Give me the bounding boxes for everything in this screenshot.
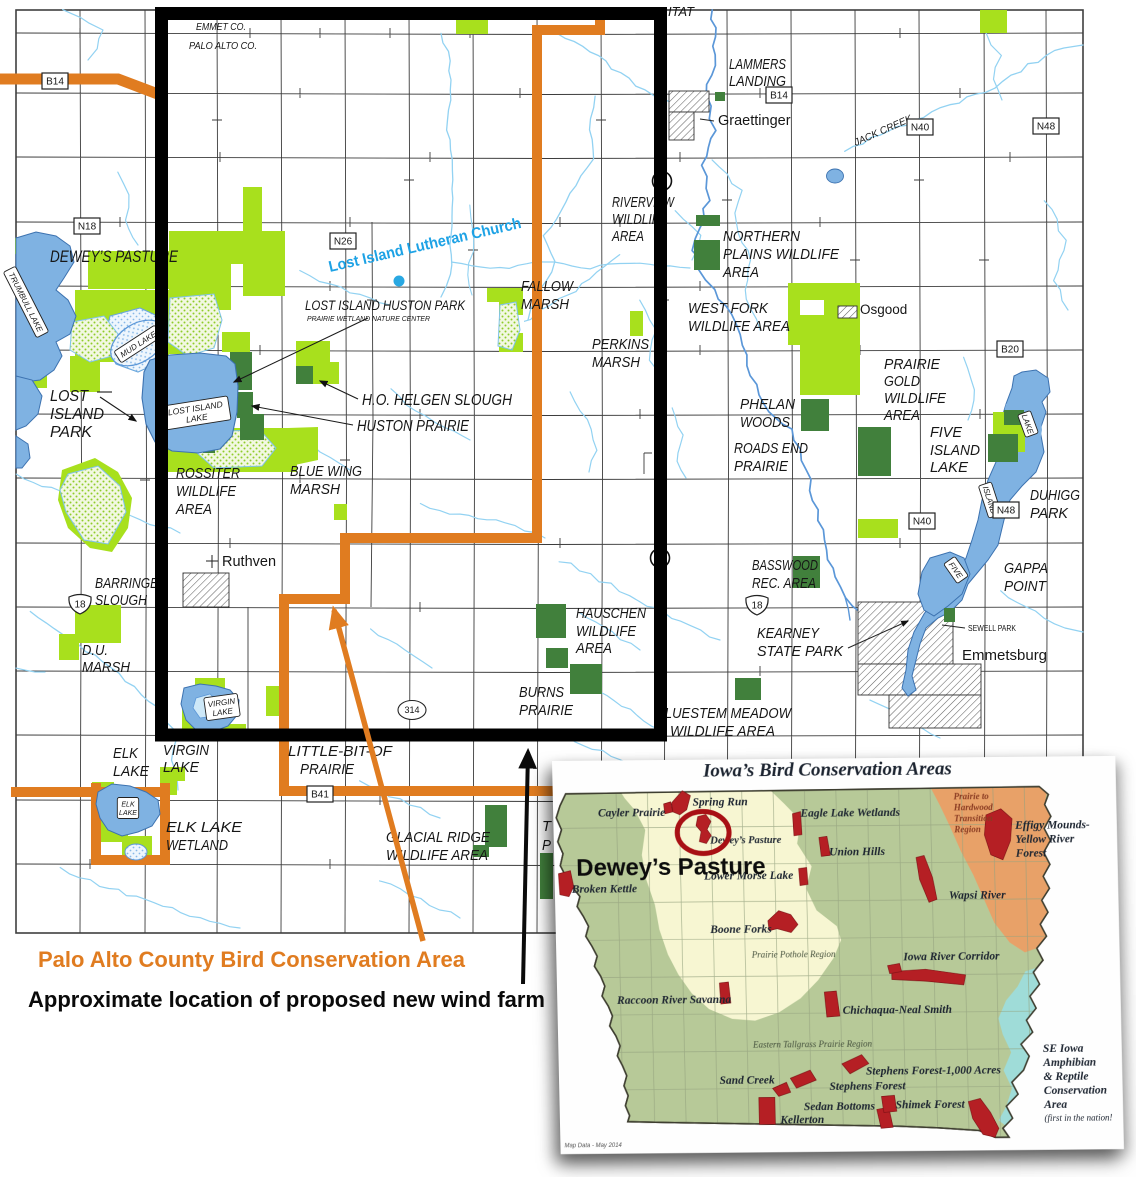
svg-text:N48: N48 <box>997 506 1016 517</box>
svg-text:Spring Run: Spring Run <box>692 796 747 809</box>
svg-text:ITAT: ITAT <box>668 4 695 19</box>
svg-text:Kellerton: Kellerton <box>779 1114 824 1126</box>
svg-text:N48: N48 <box>1037 122 1056 133</box>
svg-text:VIRGIN: VIRGIN <box>163 742 209 759</box>
svg-text:Broken Kettle: Broken Kettle <box>571 883 638 896</box>
svg-text:BASSWOOD: BASSWOOD <box>752 557 818 574</box>
svg-text:HAUSCHEN: HAUSCHEN <box>576 605 646 622</box>
svg-text:Shimek Forest: Shimek Forest <box>896 1099 966 1112</box>
svg-text:MARSH: MARSH <box>592 354 640 371</box>
svg-text:NORTHERN: NORTHERN <box>723 228 800 245</box>
svg-text:314: 314 <box>404 705 419 715</box>
svg-text:WILDLIFE AREA: WILDLIFE AREA <box>688 318 790 335</box>
svg-text:Transition: Transition <box>954 813 993 823</box>
svg-text:PALO ALTO CO.: PALO ALTO CO. <box>189 40 257 52</box>
svg-text:PERKINS: PERKINS <box>592 336 649 353</box>
svg-text:BLUE WING: BLUE WING <box>290 463 362 480</box>
svg-text:ISLAND: ISLAND <box>930 442 980 459</box>
svg-text:B41: B41 <box>311 790 329 801</box>
svg-text:WETLAND: WETLAND <box>166 837 228 854</box>
svg-text:WILDLIFE: WILDLIFE <box>176 483 237 500</box>
svg-text:Raccoon River Savanna: Raccoon River Savanna <box>616 994 732 1007</box>
svg-text:D.U.: D.U. <box>82 642 108 659</box>
svg-text:LOST: LOST <box>50 388 89 405</box>
svg-text:SE Iowa: SE Iowa <box>1043 1043 1084 1055</box>
svg-text:WOODS: WOODS <box>740 414 790 431</box>
svg-text:18: 18 <box>74 599 86 610</box>
svg-text:MARSH: MARSH <box>82 659 130 676</box>
svg-text:ROADS END: ROADS END <box>734 440 808 457</box>
svg-text:Chichaqua-Neal Smith: Chichaqua-Neal Smith <box>843 1004 952 1017</box>
svg-text:SLOUGH: SLOUGH <box>95 592 147 609</box>
svg-text:Graettinger: Graettinger <box>718 113 791 129</box>
svg-text:FIVE: FIVE <box>930 424 963 441</box>
svg-text:Eagle Lake Wetlands: Eagle Lake Wetlands <box>799 807 900 820</box>
svg-text:& Reptile: & Reptile <box>1043 1071 1088 1083</box>
svg-text:LAKE: LAKE <box>119 810 137 817</box>
svg-text:MARSH: MARSH <box>290 481 340 498</box>
svg-text:Hardwood: Hardwood <box>953 802 994 812</box>
svg-text:HUSTON PRAIRIE: HUSTON PRAIRIE <box>357 418 470 435</box>
svg-text:Iowa’s Bird Conservation Areas: Iowa’s Bird Conservation Areas <box>702 758 952 781</box>
svg-text:Conservation: Conservation <box>1044 1084 1107 1097</box>
svg-text:Iowa River Corridor: Iowa River Corridor <box>902 951 1000 964</box>
svg-text:Effigy Mounds-: Effigy Mounds- <box>1014 819 1090 832</box>
svg-text:Sand Creek: Sand Creek <box>719 1074 775 1087</box>
svg-text:ELK: ELK <box>113 745 139 762</box>
svg-text:Wapsi River: Wapsi River <box>949 890 1007 903</box>
svg-text:B14: B14 <box>46 77 64 88</box>
svg-text:WILDLIFE AREA: WILDLIFE AREA <box>670 723 775 740</box>
svg-text:ROSSITER: ROSSITER <box>176 465 240 482</box>
svg-text:Map Data - May 2014: Map Data - May 2014 <box>564 1143 622 1150</box>
svg-text:Stephens Forest: Stephens Forest <box>829 1080 906 1093</box>
svg-text:Stephens Forest-1,000 Acres: Stephens Forest-1,000 Acres <box>866 1064 1002 1077</box>
svg-text:REC. AREA: REC. AREA <box>752 575 816 592</box>
svg-text:P: P <box>542 837 551 854</box>
svg-text:N18: N18 <box>78 222 97 233</box>
svg-text:ISLAND: ISLAND <box>50 406 104 423</box>
svg-text:Ruthven: Ruthven <box>222 554 276 570</box>
svg-text:LAKE: LAKE <box>163 759 200 776</box>
svg-text:Prairie to: Prairie to <box>954 791 990 801</box>
svg-text:Forest: Forest <box>1015 847 1048 859</box>
svg-text:BLUESTEM MEADOW: BLUESTEM MEADOW <box>656 705 793 722</box>
svg-text:N26: N26 <box>334 237 353 248</box>
svg-text:AREA: AREA <box>722 264 759 281</box>
svg-text:FALLOW: FALLOW <box>521 278 575 295</box>
svg-text:Cayler Prairie: Cayler Prairie <box>598 807 665 820</box>
svg-text:Yellow River: Yellow River <box>1015 833 1075 846</box>
svg-text:Region: Region <box>953 824 981 834</box>
svg-text:(first in the nation!: (first in the nation! <box>1044 1112 1112 1123</box>
svg-text:Union Hills: Union Hills <box>829 846 886 859</box>
svg-text:Boone Forks: Boone Forks <box>709 924 772 937</box>
svg-text:DUHIGG: DUHIGG <box>1030 487 1080 504</box>
svg-text:Palo Alto County Bird Conserva: Palo Alto County Bird Conservation Area <box>38 947 466 972</box>
svg-text:STATE PARK: STATE PARK <box>757 643 844 660</box>
svg-text:Dewey’s Pasture: Dewey’s Pasture <box>709 835 782 847</box>
svg-text:Amphibian: Amphibian <box>1042 1057 1096 1069</box>
svg-text:LITTLE-BIT-OF: LITTLE-BIT-OF <box>288 743 393 760</box>
svg-text:SEWELL PARK: SEWELL PARK <box>968 624 1017 633</box>
svg-text:PRAIRIE: PRAIRIE <box>300 761 355 778</box>
svg-text:GLACIAL RIDGE: GLACIAL RIDGE <box>386 829 491 846</box>
svg-text:N40: N40 <box>913 517 932 528</box>
svg-text:WILDLIFE: WILDLIFE <box>576 623 637 640</box>
svg-text:EMMET CO.: EMMET CO. <box>196 21 246 33</box>
svg-text:AREA: AREA <box>611 228 644 245</box>
svg-text:PARK: PARK <box>50 424 93 441</box>
svg-text:Area: Area <box>1043 1099 1067 1111</box>
svg-text:Eastern Tallgrass Prairie Regi: Eastern Tallgrass Prairie Region <box>752 1039 873 1050</box>
svg-text:B14: B14 <box>770 91 788 102</box>
svg-text:BURNS: BURNS <box>519 684 564 701</box>
svg-text:B20: B20 <box>1001 345 1019 356</box>
svg-text:Osgood: Osgood <box>860 302 907 317</box>
svg-text:Dewey’s Pasture: Dewey’s Pasture <box>576 853 766 882</box>
svg-text:LOST ISLAND HUSTON PARK: LOST ISLAND HUSTON PARK <box>305 298 466 313</box>
svg-text:POINT: POINT <box>1004 578 1048 595</box>
svg-text:Approximate location of propos: Approximate location of proposed new win… <box>28 987 545 1012</box>
svg-text:Sedan Bottoms: Sedan Bottoms <box>804 1100 876 1113</box>
svg-text:LAKE: LAKE <box>930 459 969 476</box>
svg-text:PRAIRIE: PRAIRIE <box>884 356 941 373</box>
svg-text:PLAINS WILDLIFE: PLAINS WILDLIFE <box>723 246 840 263</box>
svg-text:H.O. HELGEN SLOUGH: H.O. HELGEN SLOUGH <box>362 392 513 409</box>
svg-text:N40: N40 <box>911 123 930 134</box>
svg-text:PRAIRIE: PRAIRIE <box>734 458 789 475</box>
svg-text:AREA: AREA <box>175 501 212 518</box>
svg-text:18: 18 <box>751 600 763 611</box>
svg-text:AREA: AREA <box>575 640 612 657</box>
svg-text:LAMMERS: LAMMERS <box>729 56 786 73</box>
svg-text:PARK: PARK <box>1030 505 1069 522</box>
svg-text:KEARNEY: KEARNEY <box>757 625 820 642</box>
svg-text:WILDLIFE: WILDLIFE <box>884 390 947 407</box>
svg-text:ELK: ELK <box>121 801 135 808</box>
svg-text:GAPPA: GAPPA <box>1004 560 1048 577</box>
svg-text:GOLD: GOLD <box>884 373 920 390</box>
svg-text:WEST FORK: WEST FORK <box>688 300 769 317</box>
svg-text:AREA: AREA <box>883 407 920 424</box>
svg-text:PRAIRIE WETLAND NATURE CENT: PRAIRIE WETLAND NATURE CENTER <box>307 314 431 323</box>
svg-text:Emmetsburg: Emmetsburg <box>962 647 1047 664</box>
svg-text:PRAIRIE: PRAIRIE <box>519 702 574 719</box>
svg-text:ELK LAKE: ELK LAKE <box>166 819 243 836</box>
svg-text:MARSH: MARSH <box>521 296 569 313</box>
svg-text:PHELAN: PHELAN <box>740 396 795 413</box>
svg-text:LAKE: LAKE <box>113 763 150 780</box>
svg-text:Prairie Pothole Region: Prairie Pothole Region <box>751 949 836 960</box>
